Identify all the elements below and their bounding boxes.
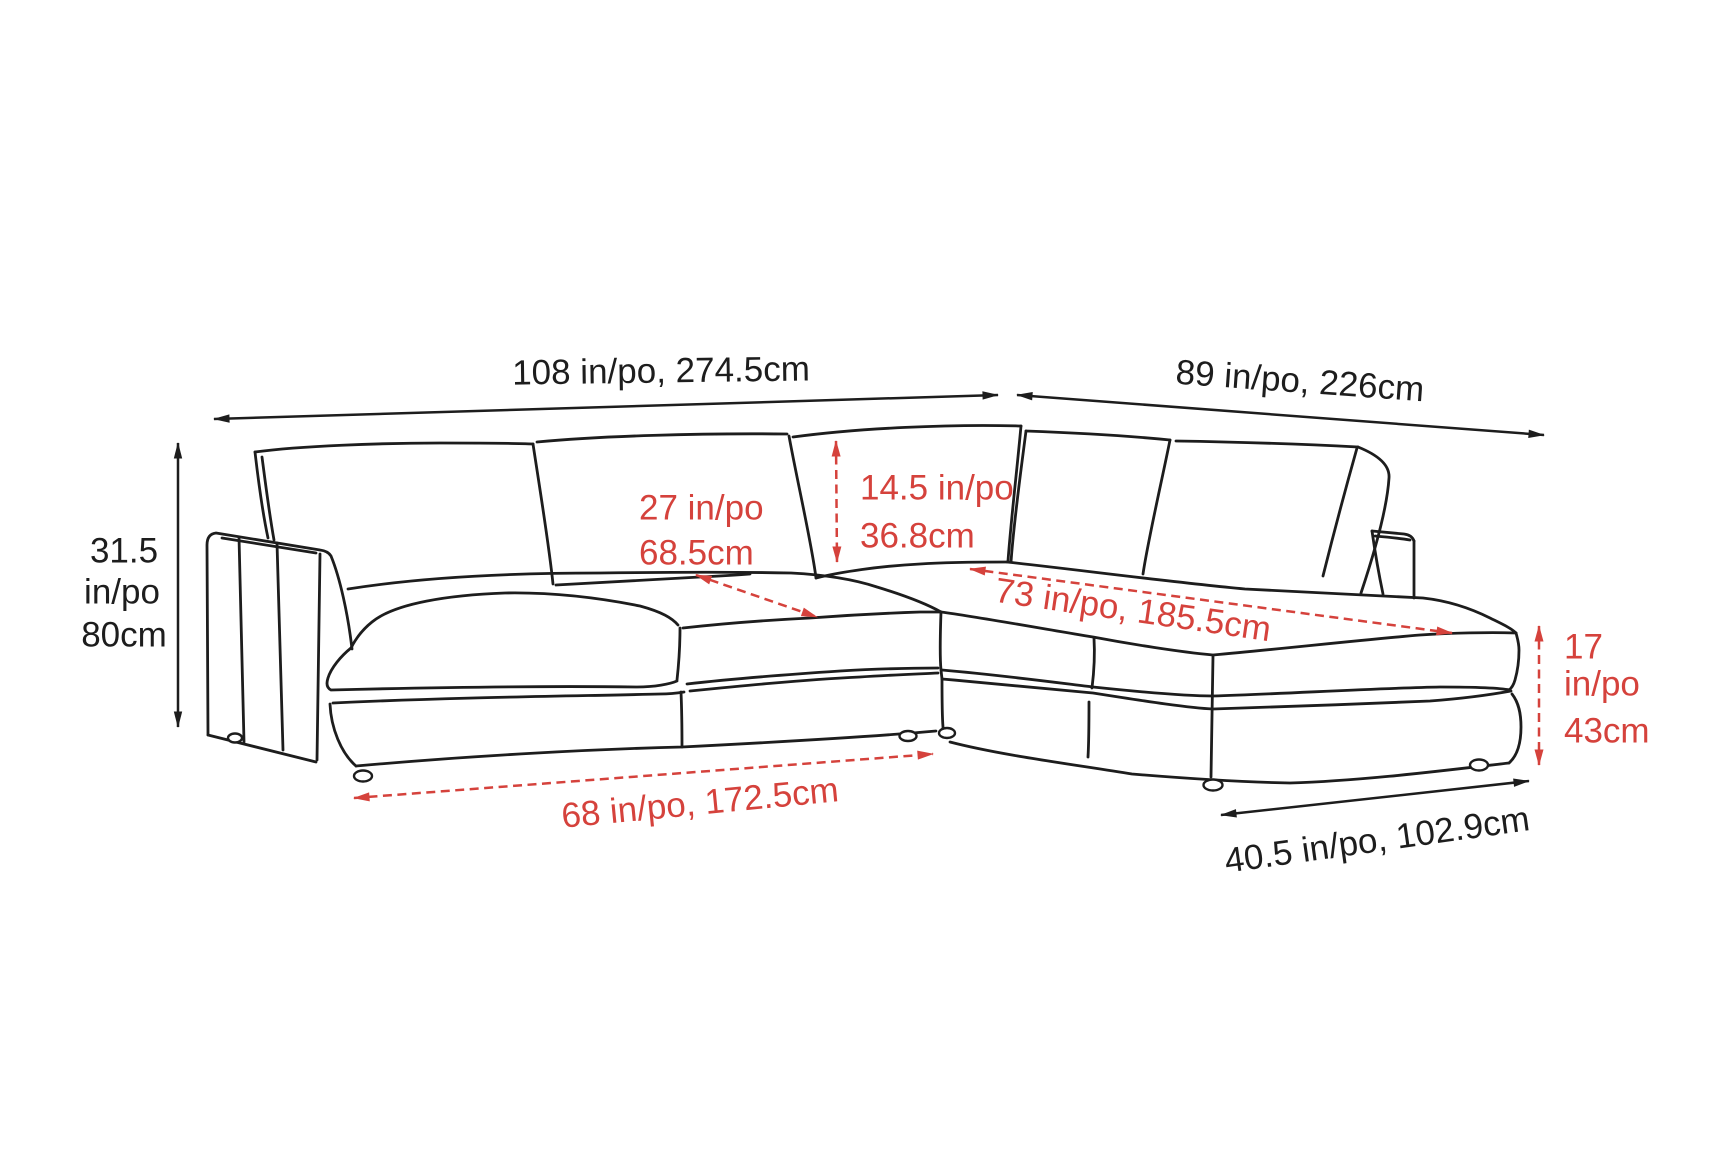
svg-text:27 in/po: 27 in/po xyxy=(639,489,764,528)
svg-text:68.5cm: 68.5cm xyxy=(639,534,754,573)
svg-text:80cm: 80cm xyxy=(81,616,167,655)
svg-text:36.8cm: 36.8cm xyxy=(860,517,975,556)
svg-text:43cm: 43cm xyxy=(1564,712,1650,751)
svg-text:108 in/po, 274.5cm: 108 in/po, 274.5cm xyxy=(512,349,810,392)
svg-text:14.5 in/po: 14.5 in/po xyxy=(860,469,1014,508)
svg-text:31.5: 31.5 xyxy=(90,532,158,571)
svg-text:in/po: in/po xyxy=(84,573,160,612)
svg-text:in/po: in/po xyxy=(1564,665,1640,704)
svg-text:17: 17 xyxy=(1564,628,1603,667)
